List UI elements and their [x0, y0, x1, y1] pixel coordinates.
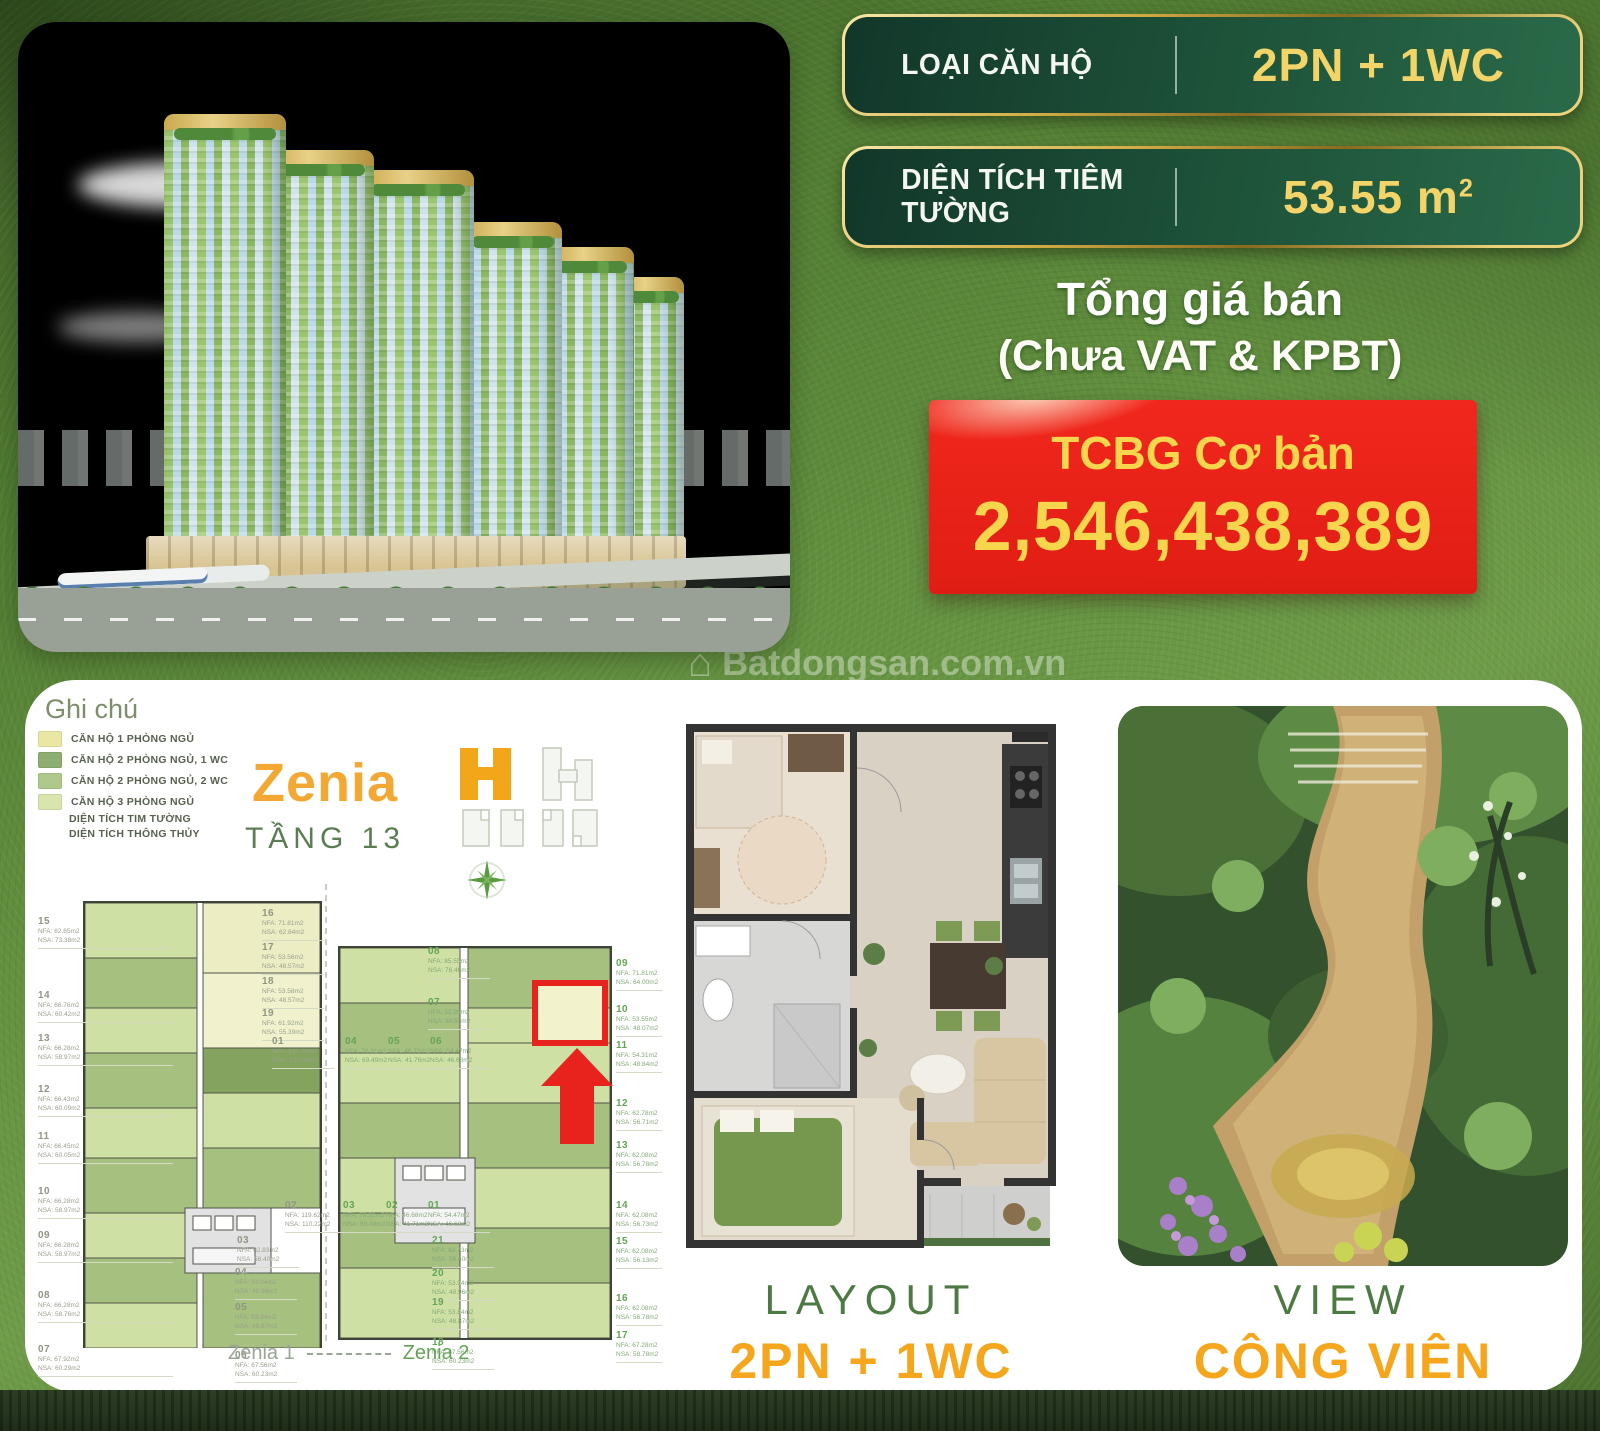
unit-label: 17NFA: 67.28m2NSA: 58.78m2	[616, 1330, 662, 1363]
unit-label: 15NFA: 82.65m2NSA: 73.38m2	[38, 916, 173, 949]
poster: ⌂ Batdongsan.com.vn LOẠI CĂN HỘ 2PN + 1W…	[0, 0, 1600, 1431]
legend-title: Ghi chú	[45, 694, 138, 725]
legend-label: CĂN HỘ 2 PHÒNG NGỦ, 1 WC	[71, 754, 228, 766]
legend-swatch	[38, 752, 62, 768]
unit-label: 01NFA: 132.76m2NSA: 120.39m2	[272, 1036, 334, 1069]
unit-label: 12NFA: 62.78m2NSA: 56.71m2	[616, 1098, 662, 1131]
legend-label: CĂN HỘ 3 PHÒNG NGỦ	[71, 796, 194, 808]
type-value: 2PN + 1WC	[1177, 38, 1580, 92]
unit-label: 14NFA: 66.76m2NSA: 60.42m2	[38, 990, 173, 1023]
unit-label: 04NFA: 53.94m2NSA: 48.96m2	[235, 1267, 297, 1300]
unit-label: 03NFA: 62.83m2NSA: 56.40m2	[237, 1235, 299, 1268]
view-title: VIEW	[1118, 1276, 1568, 1324]
floor-label: TẦNG 13	[228, 822, 422, 856]
price-box: TCBG Cơ bản 2,546,438,389	[929, 400, 1477, 594]
tower-span-labels: Zenia 1 Zenia 2	[228, 1342, 469, 1365]
unit-label: 17NFA: 53.56m2NSA: 48.57m2	[262, 942, 324, 975]
legend-item: CĂN HỘ 1 PHÒNG NGỦ	[38, 728, 228, 749]
building-photo	[18, 22, 790, 652]
road	[18, 588, 790, 652]
price-subtitle: (Chưa VAT & KPBT)	[850, 332, 1550, 381]
tower-title: Zenia TẦNG 13	[228, 752, 422, 856]
tower-3	[362, 170, 474, 578]
legend-note: DIỆN TÍCH THÔNG THỦY	[69, 827, 200, 842]
unit-label: 19NFA: 53.84m2NSA: 48.87m2	[432, 1297, 494, 1330]
layout-image	[662, 708, 1080, 1268]
keyplan-h2-icon	[543, 748, 592, 800]
layout-subtitle: 2PN + 1WC	[662, 1332, 1080, 1390]
keyplan-blocks	[463, 810, 597, 846]
unit-label: 09NFA: 71.81m2NSA: 64.00m2	[616, 958, 662, 991]
legend-item: CĂN HỘ 2 PHÒNG NGỦ, 2 WC	[38, 770, 228, 791]
view-caption: VIEW CÔNG VIÊN	[1118, 1276, 1568, 1390]
unit-label: 07NFA: 67.92m2NSA: 60.29m2	[38, 1344, 173, 1377]
area-label: DIỆN TÍCH TIÊM TƯỜNG	[845, 164, 1165, 230]
zenia1-label: Zenia 1	[228, 1342, 295, 1365]
unit-label: 08NFA: 66.28m2NSA: 58.76m2	[38, 1290, 173, 1323]
unit-label: 11NFA: 54.31m2NSA: 48.84m2	[616, 1040, 662, 1073]
type-label: LOẠI CĂN HỘ	[845, 49, 1165, 82]
unit-label: 10NFA: 53.55m2NSA: 48.07m2	[616, 1004, 662, 1037]
legend-swatch	[38, 731, 62, 747]
unit-label: 21NFA: 62.73m2NSA: 56.40m2	[432, 1235, 494, 1268]
unit-label: 01NFA: 54.47m2NSA: 46.68m2	[428, 1200, 490, 1233]
legend-notes: DIỆN TÍCH TIM TƯỜNGDIỆN TÍCH THÔNG THỦY	[69, 812, 200, 842]
view-subtitle: CÔNG VIÊN	[1118, 1332, 1568, 1390]
legend-swatch	[38, 773, 62, 789]
unit-label: 13NFA: 62.08m2NSA: 56.78m2	[616, 1140, 662, 1173]
price-value: 2,546,438,389	[929, 486, 1477, 566]
tower-4	[464, 222, 562, 577]
legend-item: CĂN HỘ 3 PHÒNG NGỦ	[38, 791, 228, 812]
layout-title: LAYOUT	[662, 1276, 1080, 1324]
tower-5	[550, 247, 634, 577]
zenia2-label: Zenia 2	[403, 1342, 470, 1365]
unit-label: 09NFA: 66.28m2NSA: 58.97m2	[38, 1230, 173, 1263]
unit-label: 10NFA: 66.28m2NSA: 58.97m2	[38, 1186, 173, 1219]
unit-label: 18NFA: 53.58m2NSA: 48.57m2	[262, 976, 324, 1009]
dashed-connector	[307, 1353, 391, 1355]
keyplan-h1-icon	[460, 748, 511, 800]
tower-1	[164, 114, 286, 578]
legend-note: DIỆN TÍCH TIM TƯỜNG	[69, 812, 200, 827]
apartment-type-badge: LOẠI CĂN HỘ 2PN + 1WC	[842, 14, 1583, 116]
legend-item: CĂN HỘ 2 PHÒNG NGỦ, 1 WC	[38, 749, 228, 770]
unit-label: 16NFA: 71.81m2NSA: 62.84m2	[262, 908, 324, 941]
unit-label: 06NFA: 54.47m2NSA: 46.68m2	[430, 1036, 492, 1069]
legend-label: CĂN HỘ 1 PHÒNG NGỦ	[71, 733, 194, 745]
legend-swatch	[38, 794, 62, 810]
unit-label: 12NFA: 66.43m2NSA: 60.09m2	[38, 1084, 173, 1117]
area-value: 53.55 m2	[1177, 170, 1580, 224]
unit-label: 16NFA: 62.08m2NSA: 56.78m2	[616, 1293, 662, 1326]
price-package-label: TCBG Cơ bản	[929, 426, 1477, 480]
unit-label: 15NFA: 62.08m2NSA: 56.13m2	[616, 1236, 662, 1269]
unit-highlight	[535, 983, 605, 1043]
price-title: Tổng giá bán	[850, 272, 1550, 326]
area-badge: DIỆN TÍCH TIÊM TƯỜNG 53.55 m2	[842, 146, 1583, 248]
view-image	[1118, 706, 1568, 1266]
unit-label: 02NFA: 119.62m2NSA: 110.22m2	[285, 1200, 347, 1233]
unit-label: 11NFA: 66.45m2NSA: 60.05m2	[38, 1131, 173, 1164]
unit-label: 13NFA: 66.28m2NSA: 58.97m2	[38, 1033, 173, 1066]
unit-label: 08NFA: 85.55m2NSA: 76.46m2	[428, 946, 490, 979]
layout-caption: LAYOUT 2PN + 1WC	[662, 1276, 1080, 1390]
tower-name: Zenia	[228, 752, 422, 814]
unit-label: 07NFA: 52.95m2NSA: 50.55m2	[428, 997, 490, 1030]
unit-label: 05NFA: 53.84m2NSA: 48.87m2	[235, 1302, 297, 1335]
footer-bar	[0, 1390, 1600, 1431]
legend-label: CĂN HỘ 2 PHÒNG NGỦ, 2 WC	[71, 775, 228, 787]
unit-label: 14NFA: 62.08m2NSA: 56.73m2	[616, 1200, 662, 1233]
legend: CĂN HỘ 1 PHÒNG NGỦCĂN HỘ 2 PHÒNG NGỦ, 1 …	[38, 728, 228, 812]
